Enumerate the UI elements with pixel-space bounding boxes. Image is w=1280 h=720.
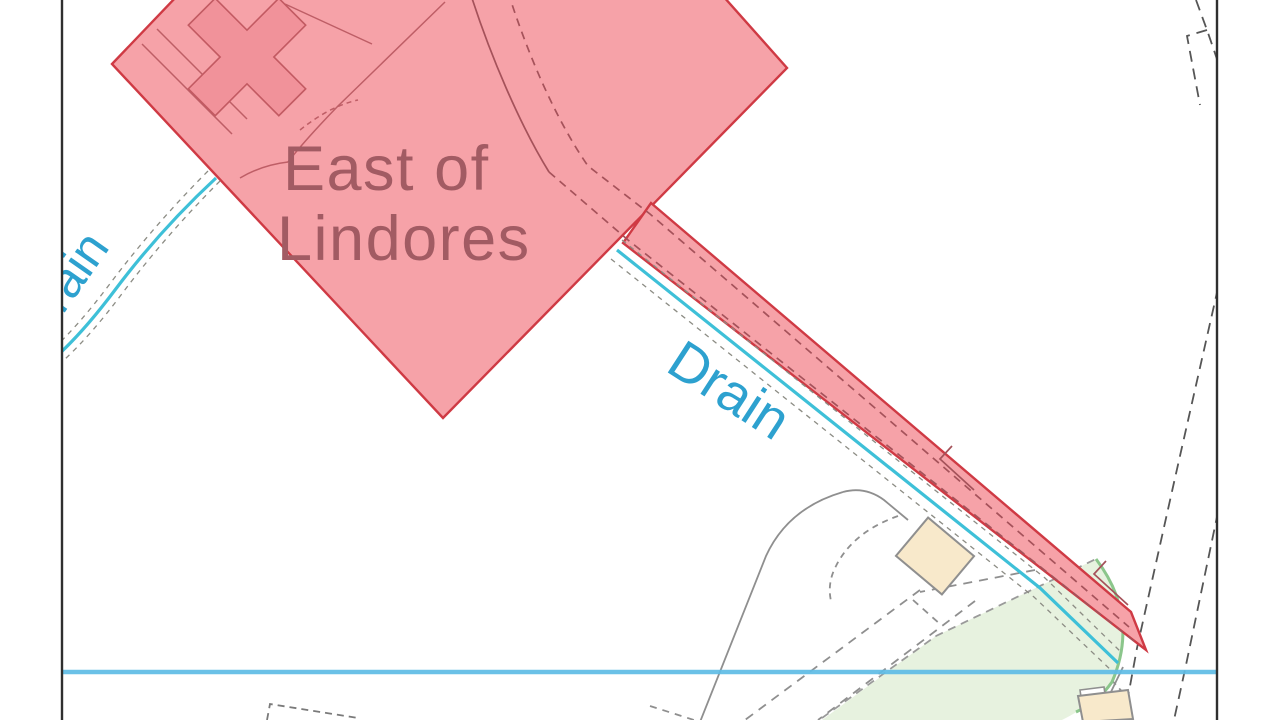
map-canvas[interactable]: East of Lindores Drain Drain bbox=[0, 0, 1280, 720]
map-viewport: East of Lindores Drain Drain bbox=[0, 0, 1280, 720]
place-label-line2: Lindores bbox=[277, 204, 531, 274]
outbuilding bbox=[1078, 690, 1133, 720]
place-label-line1: East of bbox=[283, 134, 490, 204]
